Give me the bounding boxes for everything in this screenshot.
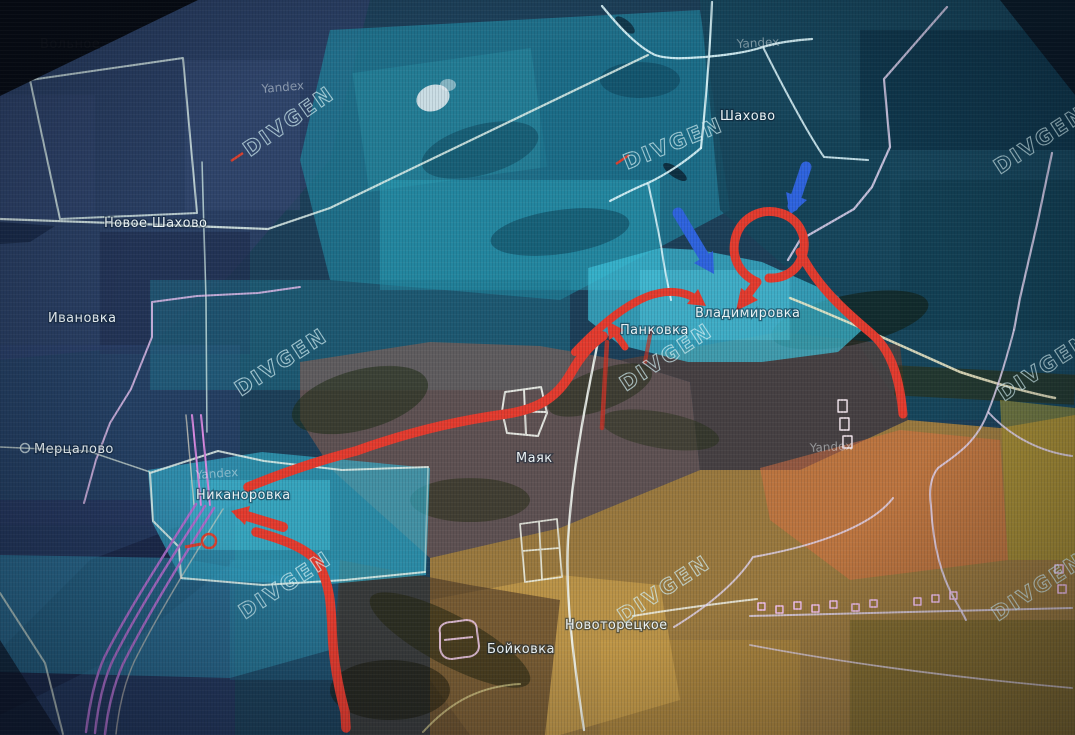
- cloud: [440, 79, 456, 91]
- place-label-boykovka: Бойковка: [487, 642, 555, 657]
- place-label-mertsalovo: Мерцалово: [34, 442, 114, 457]
- field-patch: [540, 40, 700, 180]
- place-label-novotoretskoye: Новоторецкое: [565, 618, 668, 633]
- yandex-watermark: Yandex: [808, 439, 852, 455]
- field-patch: [1000, 400, 1075, 560]
- map-photo: Вольное Новое Шахово Ивановка Мерцалово …: [0, 0, 1075, 735]
- map-canvas[interactable]: Вольное Новое Шахово Ивановка Мерцалово …: [0, 0, 1075, 735]
- place-label-vladimirovka: Владимировка: [695, 306, 800, 321]
- place-label-novoye-shakhovo: Новое Шахово: [104, 216, 207, 231]
- place-label-ivanovka: Ивановка: [48, 311, 117, 326]
- place-label-mayak: Маяк: [516, 451, 552, 466]
- field-patch: [760, 120, 890, 220]
- place-label-nikanorovka: Никаноровка: [196, 488, 291, 503]
- place-label-shakhovo: Шахово: [720, 109, 776, 124]
- yandex-watermark: Yandex: [735, 35, 779, 51]
- forest-patch: [600, 62, 680, 98]
